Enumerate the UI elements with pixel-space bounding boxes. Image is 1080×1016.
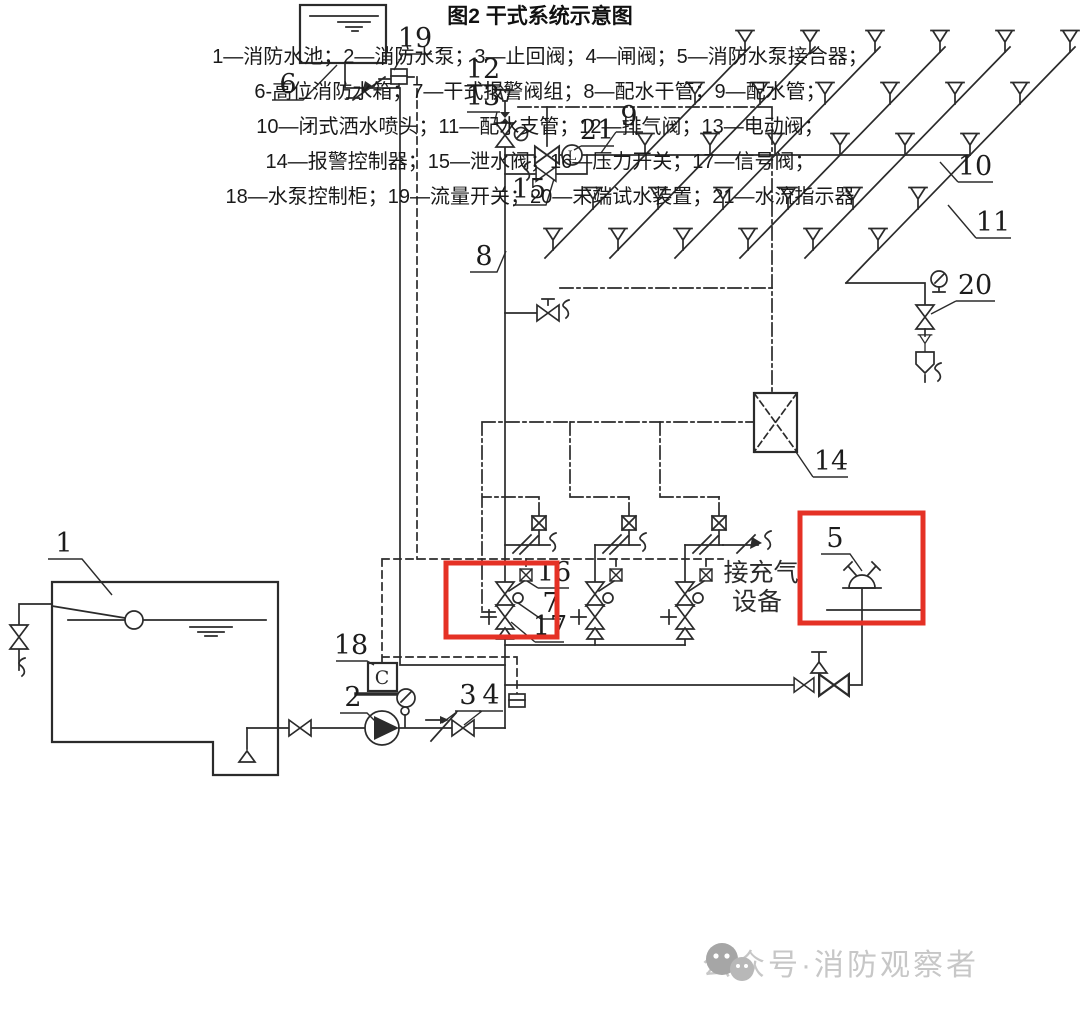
- legend-line-1: 1—消防水池；2—消防水泵；3—止回阀；4—闸阀；5—消防水泵接合器；: [0, 40, 1080, 75]
- label-18: 18: [334, 630, 374, 665]
- dry-alarm-valve-7: [496, 582, 514, 606]
- legend-line-4: 14—报警控制器；15—泄水阀；16—压力开关；17—信号阀；: [0, 145, 1080, 180]
- siamese-connection-icon: [849, 575, 875, 588]
- air-supply-connection: 接充气 设备: [723, 531, 799, 616]
- foot-valve-icon: [239, 751, 255, 762]
- pump-connector-5: [794, 562, 922, 696]
- air-equipment-text-2: 设备: [732, 588, 782, 616]
- gate-valve-4: [452, 720, 474, 736]
- svg-text:18: 18: [334, 630, 368, 661]
- alarm-controller-14: [754, 393, 797, 452]
- pressure-switch-16: [520, 569, 532, 581]
- wechat-icon: [702, 940, 758, 986]
- svg-text:5: 5: [826, 523, 843, 554]
- signal-valve-17: [496, 605, 514, 629]
- svg-text:3: 3: [459, 680, 476, 711]
- legend-line-2: 6-高位消防水箱；7—干式报警阀组；8—配水干管；9—配水管；: [0, 75, 1080, 110]
- float-valve-icon: [125, 611, 143, 629]
- svg-text:8: 8: [475, 241, 492, 272]
- label-5: 5: [821, 523, 862, 571]
- legend-line-3: 10—闭式洒水喷头；11—配水支管；12—排气阀；13—电动阀；: [0, 110, 1080, 145]
- alarm-valve-group-2: [571, 516, 646, 645]
- svg-text:1: 1: [55, 528, 72, 559]
- figure-caption: 图2 干式系统示意图: [0, 0, 1080, 30]
- label-2: 2: [340, 682, 375, 721]
- label-14: 14: [796, 446, 848, 477]
- air-equipment-text-1: 接充气: [723, 559, 798, 587]
- pressure-switch: [700, 569, 712, 581]
- pressure-switch: [610, 569, 622, 581]
- svg-text:2: 2: [344, 682, 361, 713]
- watermark: 公众号·消防观察者: [702, 940, 979, 984]
- label-8: 8: [470, 241, 506, 272]
- svg-text:14: 14: [814, 446, 848, 477]
- figure-page: L: [0, 0, 1080, 1016]
- fire-pool-1: [10, 582, 278, 775]
- cabinet-letter: C: [375, 667, 390, 689]
- label-1: 1: [48, 528, 112, 595]
- caption-block: 图2 干式系统示意图 1—消防水池；2—消防水泵；3—止回阀；4—闸阀；5—消防…: [0, 0, 1080, 215]
- end-test-device-20: [846, 271, 947, 381]
- svg-text:4: 4: [482, 680, 499, 711]
- safety-valve-icon: [811, 662, 827, 673]
- svg-text:20: 20: [958, 270, 992, 301]
- legend-line-5: 18—水泵控制柜；19—流量开关；20—末端试水装置；21—水流指示器: [0, 180, 1080, 215]
- alarm-valve-group-3: [661, 516, 726, 645]
